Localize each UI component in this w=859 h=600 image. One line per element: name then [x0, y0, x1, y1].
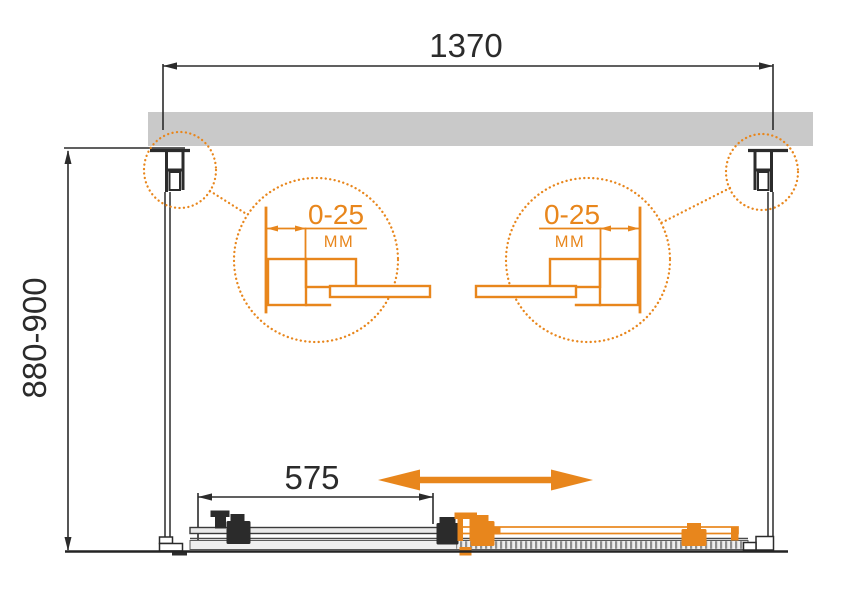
adjustment-unit-label: MM — [324, 233, 355, 251]
wall-profile-section — [600, 259, 638, 305]
arrowhead-right-icon — [759, 62, 773, 69]
overall-height-label: 880-900 — [16, 277, 53, 398]
wall-section — [148, 112, 813, 146]
glass-panel-strip — [330, 286, 430, 297]
door-knob-leg — [458, 519, 464, 541]
roller-black-left — [227, 521, 251, 544]
roller-orange-cap — [474, 515, 489, 522]
adjustment-range-label: 0-25 — [544, 199, 600, 230]
glass-edge-left — [165, 192, 170, 540]
arrowhead-down-icon — [65, 537, 72, 551]
dimension-overall-height: 880-900 — [16, 148, 185, 551]
panel-profile-section — [550, 259, 600, 287]
arrow-head-right — [551, 470, 593, 491]
corner-bracket-left-lower — [160, 544, 183, 552]
shower-enclosure-diagram: 1370 880-900 — [0, 0, 859, 600]
arrowhead-left-icon — [198, 493, 212, 500]
door-width-label: 575 — [284, 459, 339, 496]
corner-bracket-right-upper — [756, 537, 774, 551]
wall-profile-section — [268, 259, 306, 305]
bottom-track-assembly — [65, 511, 788, 556]
wall-profile-right — [748, 150, 788, 192]
adjust-arrow-left-icon — [600, 226, 611, 232]
door-rail-end-connector — [731, 527, 739, 541]
glass-edge-right — [768, 192, 773, 537]
fixed-panel-knob-stem — [215, 517, 226, 529]
roller-orange-tab — [495, 527, 501, 535]
arrowhead-left-icon — [163, 62, 177, 69]
roller-orange-end — [682, 529, 707, 546]
glass-clamp-slot — [758, 172, 769, 190]
wall-profile-left — [150, 150, 190, 192]
glass-clamp-slot — [170, 172, 181, 190]
adjust-arrow-right-icon — [295, 226, 306, 232]
arrowhead-right-icon — [419, 493, 433, 500]
arrowhead-up-icon — [65, 150, 72, 164]
slide-direction-arrow-icon — [378, 470, 593, 491]
adjust-arrow-right-icon — [628, 226, 639, 232]
corner-bracket-left-upper — [160, 537, 173, 544]
callout-leader-right — [661, 188, 730, 223]
adjustment-unit-label: MM — [555, 233, 586, 251]
corner-bracket-right-lower — [744, 543, 757, 551]
detail-callout-left: 0-25 MM — [234, 178, 430, 342]
roller-orange-left — [471, 521, 495, 546]
fixed-panel-knob-cap — [211, 511, 230, 518]
roller-black-center — [437, 523, 459, 545]
glass-panel-strip — [476, 286, 576, 297]
panel-profile-section — [306, 259, 356, 287]
technical-drawing-canvas: 1370 880-900 — [0, 0, 859, 600]
overall-width-label: 1370 — [429, 27, 502, 64]
arrow-head-left — [378, 470, 420, 491]
roller-black-cap — [231, 514, 245, 522]
wall-band — [148, 112, 813, 146]
detail-callout-right: 0-25 MM — [476, 178, 670, 342]
roller-black-cap — [440, 517, 456, 524]
adjust-arrow-left-icon — [267, 226, 278, 232]
adjustment-range-label: 0-25 — [308, 199, 364, 230]
callout-leader-left — [210, 191, 248, 215]
